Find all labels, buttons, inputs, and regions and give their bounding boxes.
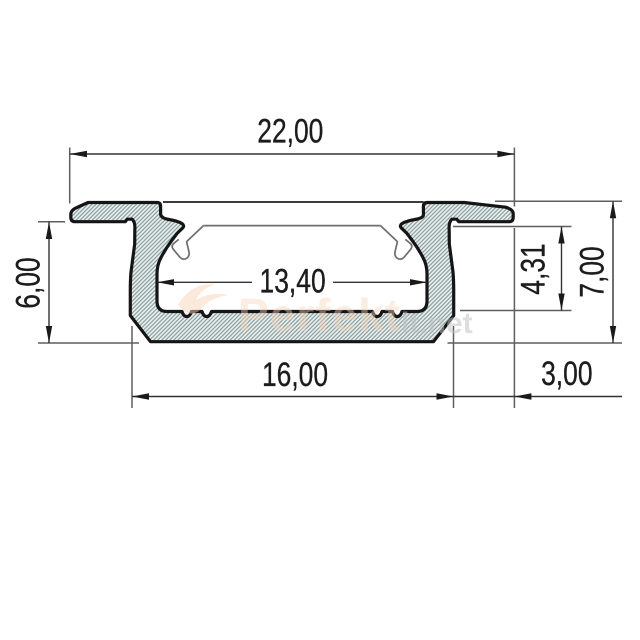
svg-text:6,00: 6,00	[9, 257, 47, 308]
svg-text:3,00: 3,00	[541, 355, 592, 393]
svg-text:Perfekt: Perfekt	[238, 289, 401, 341]
svg-text:22,00: 22,00	[257, 112, 323, 150]
svg-text:4,31: 4,31	[514, 243, 552, 294]
svg-text:7,00: 7,00	[573, 246, 611, 297]
svg-text:16,00: 16,00	[262, 356, 328, 394]
svg-text:lt.net: lt.net	[401, 307, 473, 340]
